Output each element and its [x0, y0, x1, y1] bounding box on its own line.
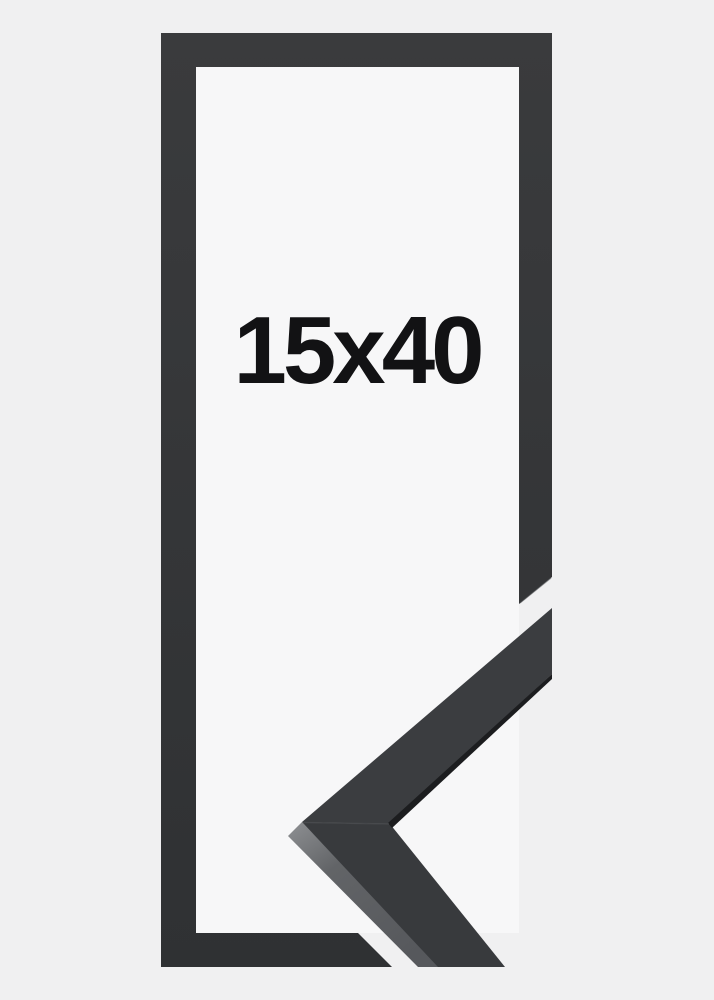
size-label: 15x40: [234, 297, 482, 404]
frame-product-image: 15x40: [0, 0, 714, 1000]
